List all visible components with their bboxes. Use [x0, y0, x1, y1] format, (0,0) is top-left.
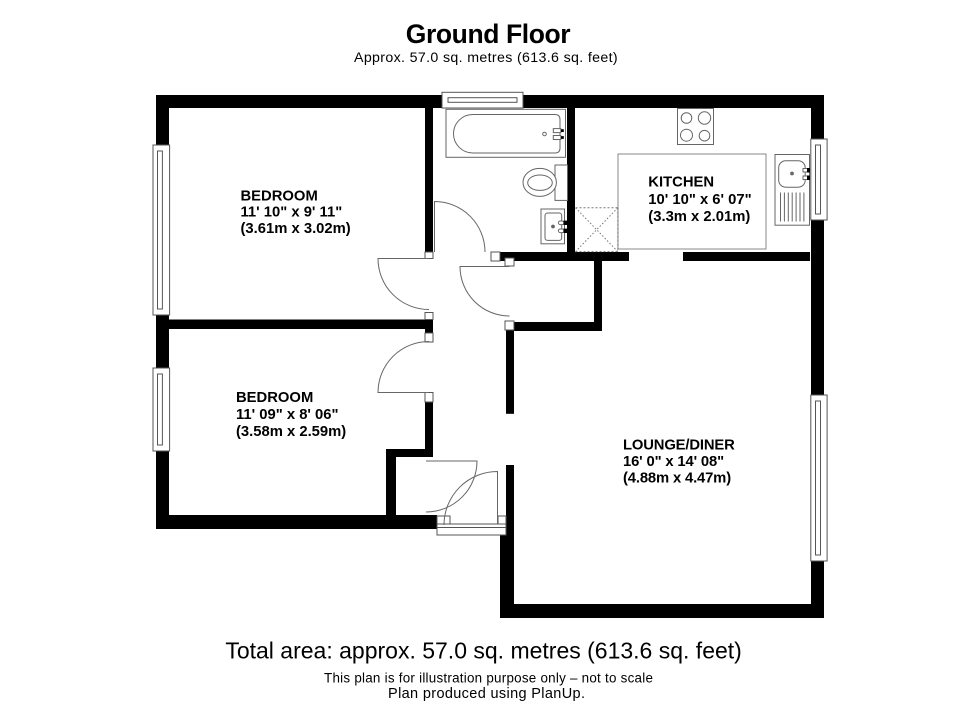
svg-text:BEDROOM: BEDROOM: [236, 390, 313, 406]
svg-text:This plan is for illustration: This plan is for illustration purpose on…: [324, 671, 653, 686]
svg-text:BEDROOM: BEDROOM: [241, 189, 318, 205]
svg-text:Plan produced using PlanUp.: Plan produced using PlanUp.: [388, 686, 585, 702]
svg-text:11' 09" x 8' 06": 11' 09" x 8' 06": [236, 407, 339, 423]
svg-text:LOUNGE/DINER: LOUNGE/DINER: [623, 438, 735, 454]
svg-text:(3.58m x 2.59m): (3.58m x 2.59m): [236, 424, 346, 440]
svg-text:(4.88m x 4.47m): (4.88m x 4.47m): [623, 470, 731, 486]
svg-text:11' 10" x 9' 11": 11' 10" x 9' 11": [241, 205, 343, 221]
svg-text:KITCHEN: KITCHEN: [648, 175, 714, 191]
svg-text:Ground Floor: Ground Floor: [406, 19, 571, 49]
svg-text:(3.3m x 2.01m): (3.3m x 2.01m): [648, 209, 750, 225]
svg-text:10' 10" x 6' 07": 10' 10" x 6' 07": [648, 192, 751, 208]
svg-text:Approx. 57.0 sq. metres (613.6: Approx. 57.0 sq. metres (613.6 sq. feet): [354, 50, 618, 66]
svg-text:16' 0" x 14' 08": 16' 0" x 14' 08": [623, 454, 724, 470]
svg-text:(3.61m x 3.02m): (3.61m x 3.02m): [241, 221, 351, 237]
svg-text:Total area: approx. 57.0 sq. m: Total area: approx. 57.0 sq. metres (613…: [225, 638, 742, 664]
